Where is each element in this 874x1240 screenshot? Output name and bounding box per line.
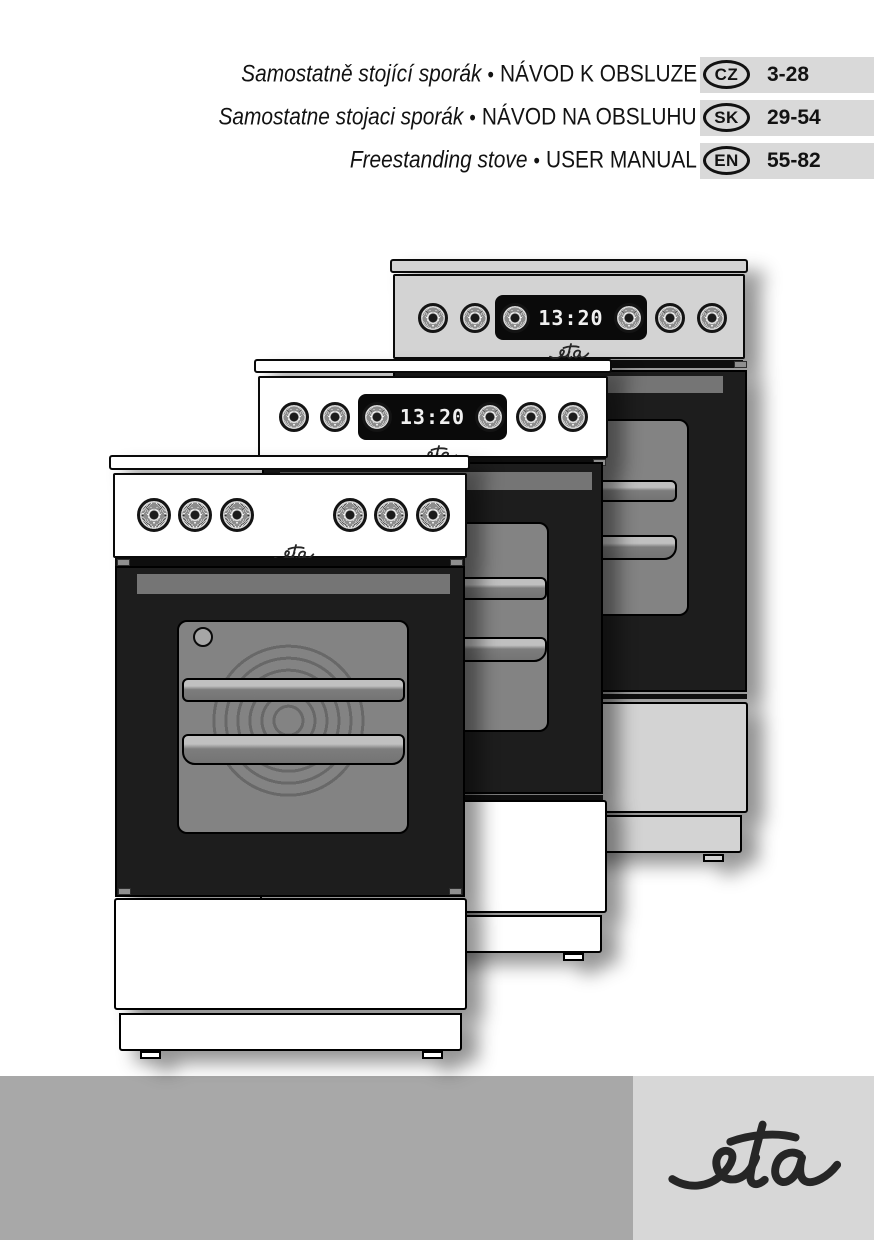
oven-light [193, 627, 213, 647]
hinge-cap [449, 888, 462, 895]
control-knob [374, 498, 408, 532]
storage-drawer [114, 898, 467, 1010]
stove-foot [422, 1051, 443, 1059]
control-knob [279, 402, 309, 432]
control-knob [516, 402, 546, 432]
stove-foot [703, 854, 724, 862]
control-knob [137, 498, 171, 532]
control-knob [500, 303, 530, 333]
stove-front [109, 455, 470, 1059]
control-knob [333, 498, 367, 532]
stove-foot [563, 953, 584, 961]
control-knob [178, 498, 212, 532]
eta-logo-large [661, 1116, 847, 1202]
control-panel: 13:20 [258, 376, 608, 458]
manual-cover-page: Samostatně stojící sporák•NÁVOD K OBSLUZ… [0, 0, 874, 1240]
control-knob [418, 303, 448, 333]
control-knob [320, 402, 350, 432]
tray-handle [182, 678, 405, 702]
clock-time: 13:20 [400, 405, 465, 429]
clock-time: 13:20 [538, 306, 603, 330]
control-knob [362, 402, 392, 432]
control-knob [655, 303, 685, 333]
control-knob [558, 402, 588, 432]
control-panel: 13:20 [393, 274, 745, 359]
control-knob [220, 498, 254, 532]
footer-band [0, 1076, 874, 1240]
control-knob [416, 498, 450, 532]
cooktop-slab [390, 259, 748, 273]
door-window [177, 620, 409, 834]
stoves-illustration: 13:20 [0, 0, 874, 1240]
control-knob [460, 303, 490, 333]
hinge-cap [734, 361, 747, 368]
hinge-cap [118, 888, 131, 895]
control-knob [697, 303, 727, 333]
stove-foot [140, 1051, 161, 1059]
cooktop-slab [254, 359, 612, 373]
oven-door [115, 566, 465, 897]
hinge-bar [115, 558, 465, 566]
tray-handle [182, 734, 405, 765]
hinge-cap [450, 559, 463, 566]
plinth [119, 1013, 462, 1051]
hinge-cap [117, 559, 130, 566]
cooktop-slab [109, 455, 470, 470]
control-panel [113, 473, 467, 558]
vent-grille [137, 574, 450, 594]
control-knob [614, 303, 644, 333]
footer-logo-box [633, 1076, 874, 1240]
control-knob [475, 402, 505, 432]
